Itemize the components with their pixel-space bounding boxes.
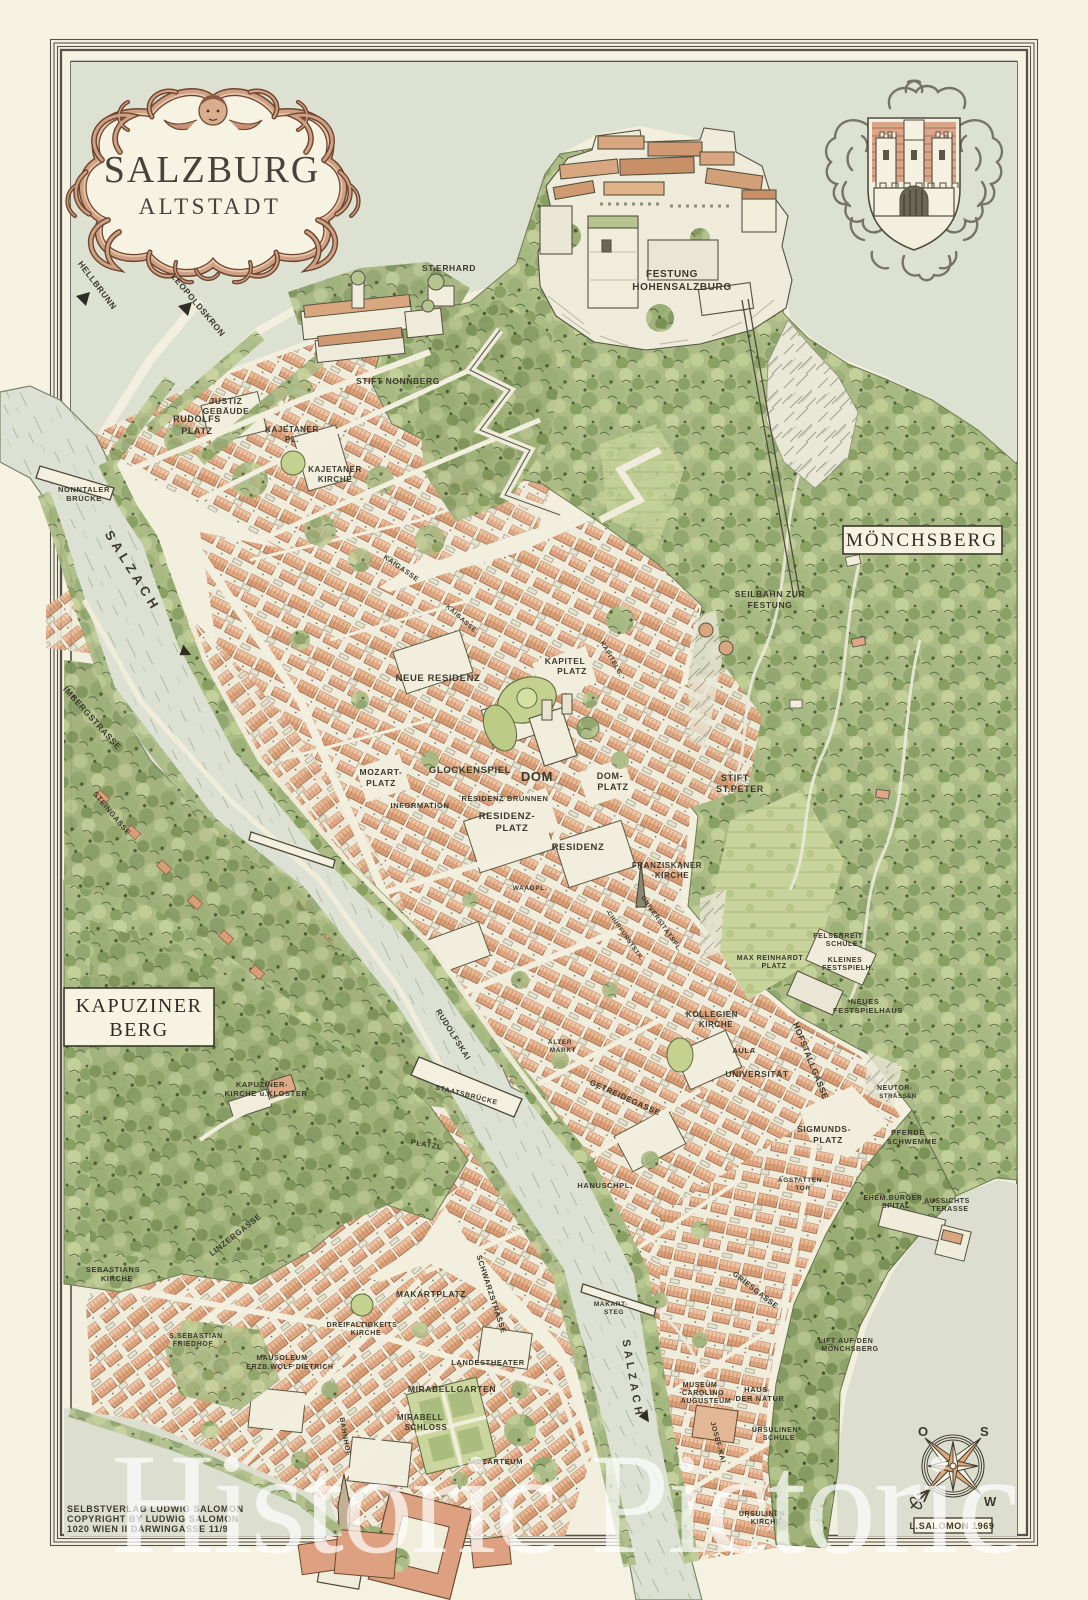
svg-text:STIFT NONNBERG: STIFT NONNBERG xyxy=(356,376,440,386)
svg-text:NEUES: NEUES xyxy=(851,997,880,1006)
svg-text:MAKARTPLATZ: MAKARTPLATZ xyxy=(396,1289,466,1299)
svg-text:STEG: STEG xyxy=(604,1309,624,1316)
svg-text:FRIEDHOF: FRIEDHOF xyxy=(173,1341,214,1348)
svg-text:SEBASTIANS: SEBASTIANS xyxy=(86,1265,140,1274)
svg-text:RUDOLFS: RUDOLFS xyxy=(173,414,221,424)
svg-text:FELSENREIT: FELSENREIT xyxy=(813,933,863,940)
svg-text:PFERDE: PFERDE xyxy=(891,1128,925,1137)
svg-text:SEILBAHN ZUR: SEILBAHN ZUR xyxy=(735,589,805,599)
svg-text:UNIVERSITÄT: UNIVERSITÄT xyxy=(725,1069,788,1079)
svg-text:NEUE RESIDENZ: NEUE RESIDENZ xyxy=(396,673,481,684)
svg-text:RESIDENZ BRUNNEN: RESIDENZ BRUNNEN xyxy=(461,794,548,803)
svg-text:MÖNCHSBERG: MÖNCHSBERG xyxy=(846,530,998,551)
svg-text:ALTER: ALTER xyxy=(548,1039,572,1046)
svg-text:MAUSOLEUM: MAUSOLEUM xyxy=(256,1355,307,1362)
svg-text:MOZART-: MOZART- xyxy=(360,767,403,777)
svg-text:MIRABELL: MIRABELL xyxy=(397,1413,443,1422)
svg-text:BERG: BERG xyxy=(109,1019,168,1041)
svg-text:AUGUSTEUM: AUGUSTEUM xyxy=(681,1398,732,1405)
svg-text:KIRCHE: KIRCHE xyxy=(351,1330,381,1337)
svg-text:KIRCHE: KIRCHE xyxy=(699,1020,733,1029)
svg-text:KAPITEL: KAPITEL xyxy=(545,656,586,666)
svg-text:FESTUNG: FESTUNG xyxy=(748,600,793,610)
svg-text:AULA: AULA xyxy=(732,1046,755,1055)
svg-text:ST.PETER: ST.PETER xyxy=(716,784,764,794)
svg-text:SCHWEMME: SCHWEMME xyxy=(887,1137,937,1146)
svg-text:MARKT: MARKT xyxy=(550,1047,576,1054)
svg-text:ERZB.WOLF DIETRICH: ERZB.WOLF DIETRICH xyxy=(246,1364,333,1371)
svg-text:LIFT AUF DEN: LIFT AUF DEN xyxy=(819,1338,874,1345)
svg-text:GLOCKENSPIEL: GLOCKENSPIEL xyxy=(429,765,511,776)
svg-text:BRÜCKE: BRÜCKE xyxy=(66,494,102,503)
svg-text:FESTSPIELHAUS: FESTSPIELHAUS xyxy=(833,1006,903,1015)
svg-text:MAKART-: MAKART- xyxy=(594,1301,628,1308)
svg-text:PLATZ: PLATZ xyxy=(813,1135,843,1145)
svg-text:KAJETANER: KAJETANER xyxy=(308,465,362,474)
svg-text:KAPUZINER-: KAPUZINER- xyxy=(236,1080,288,1089)
svg-text:MIRABELLGARTEN: MIRABELLGARTEN xyxy=(408,1384,496,1394)
svg-text:STIFT: STIFT xyxy=(721,773,749,783)
svg-text:DREIFALTIGKEITS: DREIFALTIGKEITS xyxy=(327,1322,398,1329)
svg-text:JUSTIZ: JUSTIZ xyxy=(210,396,243,406)
svg-text:KIRCHE: KIRCHE xyxy=(318,475,352,484)
svg-text:KIRCHE: KIRCHE xyxy=(655,871,689,880)
svg-text:PLATZ: PLATZ xyxy=(181,426,212,436)
svg-text:PLATZ: PLATZ xyxy=(366,778,396,788)
svg-text:INFORMATION: INFORMATION xyxy=(391,801,450,810)
svg-text:KIRCHE: KIRCHE xyxy=(101,1274,133,1283)
svg-text:KIRCHE u.KLOSTER: KIRCHE u.KLOSTER xyxy=(225,1089,308,1098)
svg-text:SCHULE: SCHULE xyxy=(826,941,858,948)
svg-text:HOHENSALZBURG: HOHENSALZBURG xyxy=(632,282,731,293)
svg-text:FRANZISKANER: FRANZISKANER xyxy=(632,861,702,870)
svg-text:FESTSPIELH.: FESTSPIELH. xyxy=(822,965,874,972)
svg-text:KOLLEGIEN: KOLLEGIEN xyxy=(686,1010,738,1019)
svg-text:FESTUNG: FESTUNG xyxy=(646,269,698,280)
svg-text:WAAGPL.: WAAGPL. xyxy=(513,885,548,892)
svg-text:STRASSEN: STRASSEN xyxy=(879,1094,916,1100)
svg-text:SPITAL: SPITAL xyxy=(882,1203,910,1210)
svg-text:KAJETANER: KAJETANER xyxy=(265,425,319,434)
svg-text:DOM: DOM xyxy=(521,769,553,784)
svg-text:HANUSCHPL.: HANUSCHPL. xyxy=(577,1181,632,1190)
svg-text:MUSEUM: MUSEUM xyxy=(683,1382,718,1389)
svg-text:CAROLINO: CAROLINO xyxy=(682,1390,724,1397)
svg-text:NEUTOR-: NEUTOR- xyxy=(877,1085,913,1092)
svg-text:ALTSTADT: ALTSTADT xyxy=(139,194,282,219)
svg-text:RESIDENZ-: RESIDENZ- xyxy=(479,811,536,822)
svg-text:NONNTALER: NONNTALER xyxy=(58,485,110,494)
svg-text:AUSSICHTS: AUSSICHTS xyxy=(924,1198,970,1205)
svg-text:ST.ERHARD: ST.ERHARD xyxy=(422,263,476,273)
svg-text:DER NATUR: DER NATUR xyxy=(735,1394,784,1403)
svg-text:TOR: TOR xyxy=(795,1185,810,1192)
svg-text:LANDESTHEATER: LANDESTHEATER xyxy=(451,1358,525,1367)
svg-text:PL.: PL. xyxy=(285,435,299,444)
svg-text:PLATZ: PLATZ xyxy=(496,823,529,834)
svg-text:KAPUZINER: KAPUZINER xyxy=(76,995,203,1017)
svg-text:PLATZ: PLATZ xyxy=(557,666,587,676)
svg-text:RESIDENZ: RESIDENZ xyxy=(552,842,605,853)
svg-text:Historic Pictoric: Historic Pictoric xyxy=(111,1425,1021,1584)
svg-text:EHEM.BÜRGER: EHEM.BÜRGER xyxy=(863,1193,922,1202)
svg-text:SIGMUNDS-: SIGMUNDS- xyxy=(797,1124,851,1134)
svg-text:KLEINES: KLEINES xyxy=(828,957,863,964)
svg-text:MÖNCHSBERG: MÖNCHSBERG xyxy=(821,1344,878,1353)
svg-text:SALZBURG: SALZBURG xyxy=(104,149,321,191)
svg-text:PLATZ: PLATZ xyxy=(597,782,628,792)
svg-text:HAUS: HAUS xyxy=(744,1385,768,1394)
svg-text:S.SEBASTIAN: S.SEBASTIAN xyxy=(169,1333,223,1340)
svg-text:PLATZ: PLATZ xyxy=(761,963,786,970)
svg-text:ÄGSTATTEN: ÄGSTATTEN xyxy=(778,1176,822,1184)
svg-text:MAX REINHARDT: MAX REINHARDT xyxy=(737,955,804,962)
svg-text:TERASSE: TERASSE xyxy=(931,1206,968,1213)
svg-text:DOM-: DOM- xyxy=(597,771,623,781)
